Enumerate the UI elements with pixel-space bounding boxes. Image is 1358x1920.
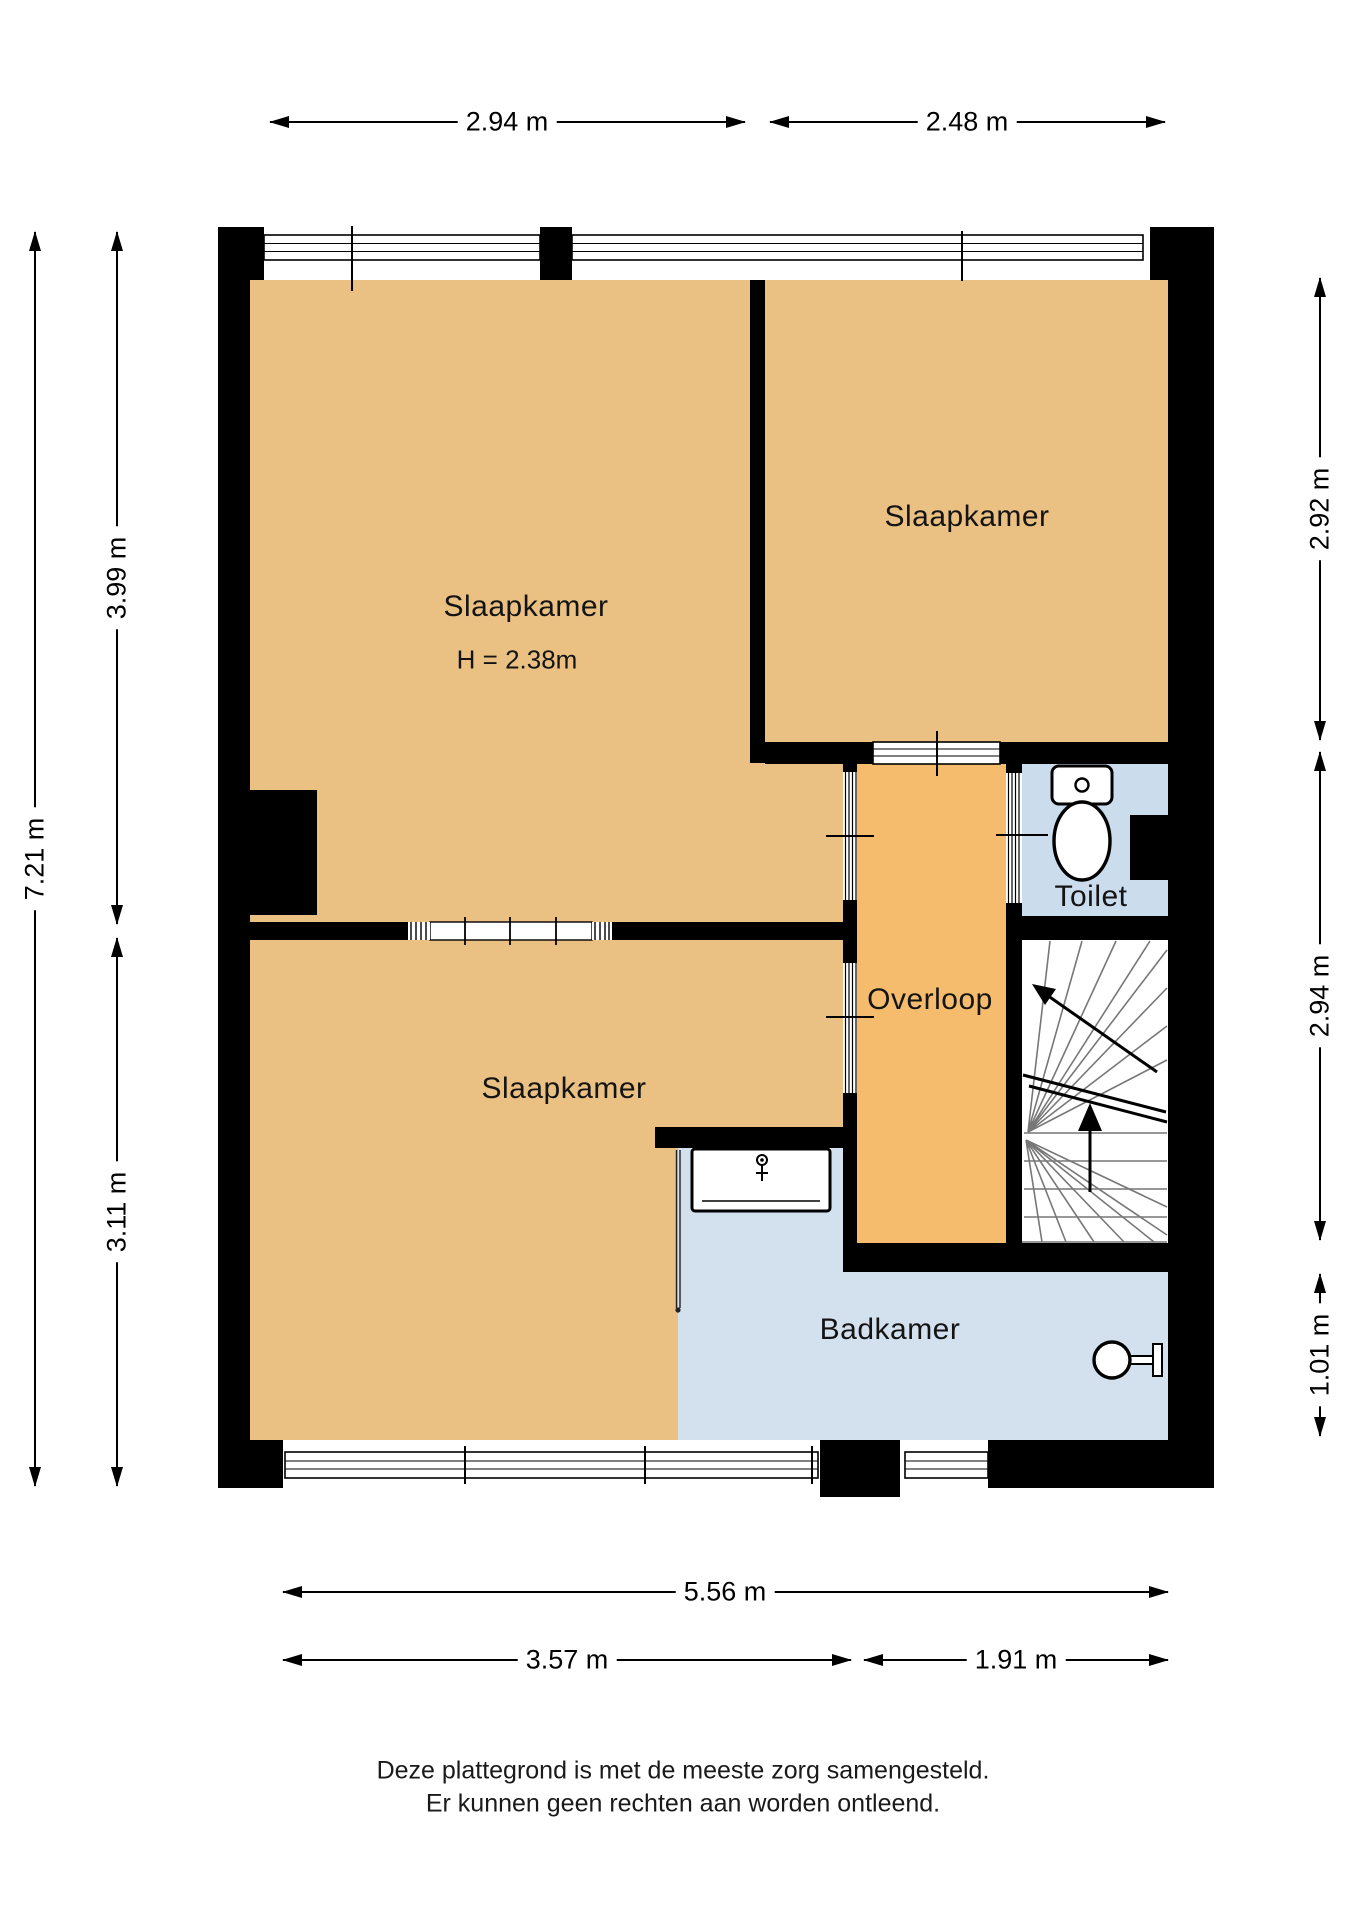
wall-bottom-pier	[820, 1440, 900, 1497]
wall-toilet-bottom	[1006, 916, 1168, 940]
dim-label-right-upper: 2.92 m	[1304, 458, 1337, 561]
wall-bathtub	[655, 1127, 843, 1148]
wall-landing-left-mid	[843, 900, 857, 963]
wall-top-pier	[540, 227, 572, 280]
bathtub-icon	[692, 1149, 830, 1211]
disclaimer-line-1: Deze plattegrond is met de meeste zorg s…	[377, 1757, 990, 1786]
room-label-bedroom-bottom-left: Slaapkamer	[481, 1072, 646, 1106]
wall-stairs-left	[1006, 940, 1022, 1243]
dim-label-bottom-total: 5.56 m	[676, 1576, 775, 1609]
toilet-icon	[1052, 766, 1112, 880]
room-label-bedroom-top-left: Slaapkamer	[443, 590, 608, 624]
wall-corner-bottom-left	[218, 1440, 283, 1488]
wall-corner-top-left	[218, 227, 264, 280]
wall-landing-left-top	[843, 763, 857, 772]
floorplan-canvas: Slaapkamer H = 2.38m Slaapkamer Slaapkam…	[0, 0, 1358, 1920]
window-bottom-small	[905, 1452, 988, 1478]
wall-interior-left-b	[612, 922, 843, 940]
dim-label-bottom-right: 1.91 m	[967, 1644, 1066, 1677]
room-bedroom-top-left-alcove	[750, 763, 843, 922]
dim-label-right-small: 1.01 m	[1304, 1304, 1337, 1407]
door-jamb-interior-b	[592, 922, 612, 940]
wall-left	[218, 227, 250, 1488]
wall-chimney-breast	[250, 790, 317, 915]
room-label-toilet: Toilet	[1054, 880, 1127, 914]
door-jamb-interior-a	[408, 922, 430, 940]
dim-label-left-lower: 3.11 m	[101, 1162, 134, 1263]
disclaimer-line-2: Er kunnen geen rechten aan worden ontlee…	[426, 1790, 940, 1819]
wall-right	[1168, 227, 1214, 1488]
wall-toilet-duct	[1130, 815, 1168, 880]
wall-landing-left-low	[843, 1093, 857, 1243]
room-bedroom-bottom-left	[250, 1127, 678, 1440]
floorplan-drawing	[0, 0, 1358, 1920]
window-bottom-main	[285, 1446, 818, 1484]
ceiling-height-note: H = 2.38m	[457, 645, 578, 676]
wall-bottom-right	[988, 1440, 1214, 1488]
wall-interior-left-a	[250, 922, 408, 940]
dim-label-bottom-left: 3.57 m	[518, 1644, 617, 1677]
wall-under-stairs	[843, 1243, 1168, 1272]
wall-landing-right-top	[1006, 763, 1022, 773]
wall-bedroom-tr-bottom-left	[765, 742, 873, 764]
room-label-landing: Overloop	[867, 983, 993, 1017]
window-top-right	[572, 231, 1143, 281]
room-label-bathroom: Badkamer	[820, 1313, 961, 1347]
dim-label-top-left: 2.94 m	[458, 106, 557, 139]
dim-label-left-upper: 3.99 m	[101, 527, 134, 630]
wall-between-top-bedrooms	[750, 280, 765, 763]
room-label-bedroom-top-right: Slaapkamer	[884, 500, 1049, 534]
dim-label-top-right: 2.48 m	[918, 106, 1017, 139]
wall-bedroom-tr-bottom-right	[1000, 742, 1168, 764]
dim-label-left-total: 7.21 m	[19, 808, 52, 911]
dim-label-right-mid: 2.94 m	[1304, 945, 1337, 1048]
